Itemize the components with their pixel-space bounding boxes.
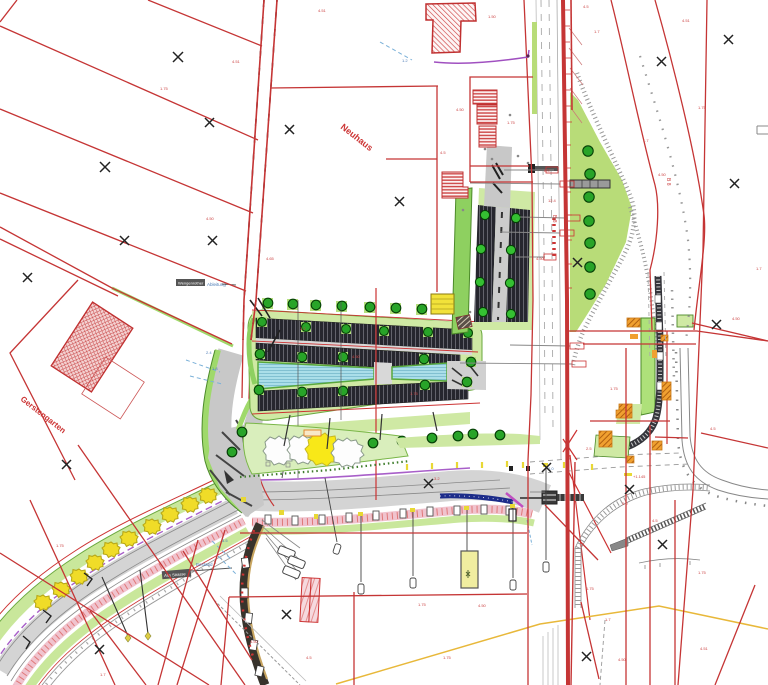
- svg-text:4.50: 4.50: [206, 216, 215, 221]
- svg-text:2.2: 2.2: [300, 326, 306, 331]
- svg-text:4.50: 4.50: [478, 603, 487, 608]
- svg-text:3.2: 3.2: [434, 476, 440, 481]
- svg-text:4.51: 4.51: [682, 18, 691, 23]
- svg-text:B 8: B 8: [665, 178, 671, 186]
- svg-text:B 8: B 8: [551, 215, 557, 223]
- svg-text:4.50: 4.50: [250, 639, 259, 644]
- svg-text:1.2: 1.2: [402, 58, 408, 63]
- svg-text:4.51: 4.51: [232, 59, 241, 64]
- svg-text:4.50: 4.50: [618, 657, 627, 662]
- svg-text:1.75: 1.75: [160, 86, 169, 91]
- svg-text:4.5: 4.5: [710, 426, 716, 431]
- svg-text:1.75: 1.75: [410, 391, 419, 396]
- svg-text:4.50: 4.50: [352, 354, 361, 359]
- svg-text:4.5: 4.5: [652, 518, 658, 523]
- svg-text:Ableitung: Ableitung: [207, 282, 226, 287]
- svg-text:4.50: 4.50: [658, 172, 667, 177]
- svg-text:1.75: 1.75: [56, 543, 65, 548]
- svg-text:1.7: 1.7: [100, 672, 106, 677]
- svg-text:1.75: 1.75: [418, 602, 427, 607]
- svg-text:1.7: 1.7: [643, 138, 649, 143]
- svg-text:1.8: 1.8: [212, 366, 218, 371]
- svg-text:5.0: 5.0: [622, 501, 628, 506]
- svg-text:2.5: 2.5: [586, 446, 592, 451]
- svg-text:1.75: 1.75: [586, 586, 595, 591]
- svg-text:1.75: 1.75: [507, 120, 516, 125]
- svg-text:4.5: 4.5: [306, 655, 312, 660]
- svg-text:4.65: 4.65: [266, 256, 275, 261]
- svg-text:1.50: 1.50: [488, 14, 497, 19]
- svg-text:1.7: 1.7: [605, 617, 611, 622]
- svg-text:1.75: 1.75: [443, 655, 452, 660]
- svg-text:+1.145: +1.145: [633, 474, 646, 479]
- svg-text:4.50: 4.50: [536, 256, 545, 261]
- svg-text:Bestand: Bestand: [196, 562, 213, 567]
- svg-text:3.5: 3.5: [222, 538, 228, 543]
- svg-text:Wengenrother: Wengenrother: [178, 281, 204, 286]
- svg-text:8.5: 8.5: [544, 168, 550, 173]
- svg-text:1.7: 1.7: [594, 29, 600, 34]
- svg-text:4.5: 4.5: [583, 4, 589, 9]
- svg-text:12.4: 12.4: [548, 198, 557, 203]
- svg-text:2.4: 2.4: [206, 350, 212, 355]
- svg-text:4.51: 4.51: [700, 646, 709, 651]
- svg-text:4.51: 4.51: [318, 8, 327, 13]
- svg-text:4.50: 4.50: [456, 107, 465, 112]
- svg-text:1.7: 1.7: [756, 266, 762, 271]
- svg-text:1.75: 1.75: [610, 386, 619, 391]
- svg-text:1.75: 1.75: [698, 570, 707, 575]
- svg-text:4.50: 4.50: [732, 316, 741, 321]
- svg-text:1.75: 1.75: [698, 105, 707, 110]
- svg-text:4.5: 4.5: [440, 150, 446, 155]
